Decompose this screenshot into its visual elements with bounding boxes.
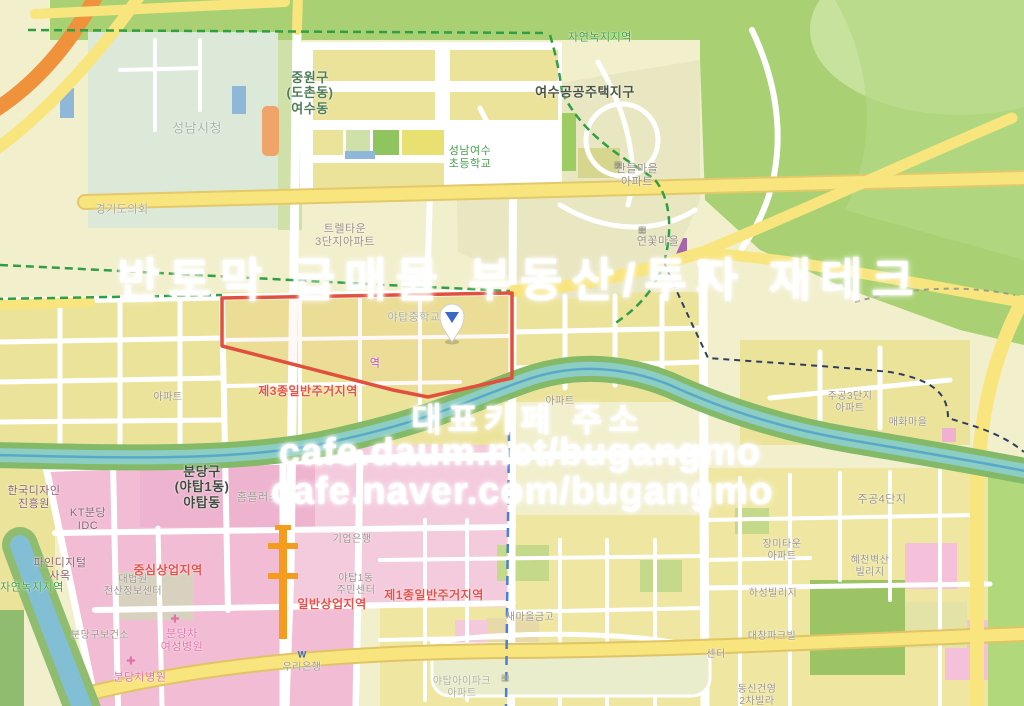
- watermark-slogan: 반토막 급매물 부동산/투자 재테크: [117, 244, 923, 310]
- watermark-naver-url: cafe.naver.com/bugangmo: [271, 471, 773, 514]
- map-canvas: [0, 0, 1024, 706]
- watermark-daum-url: cafe.daum.net/bugangmo: [279, 432, 761, 475]
- map-viewport[interactable]: 자연녹지지역중원구 (도촌동) 여수동여수공공주택지구성남시청경기도의회성남여수…: [0, 0, 1024, 706]
